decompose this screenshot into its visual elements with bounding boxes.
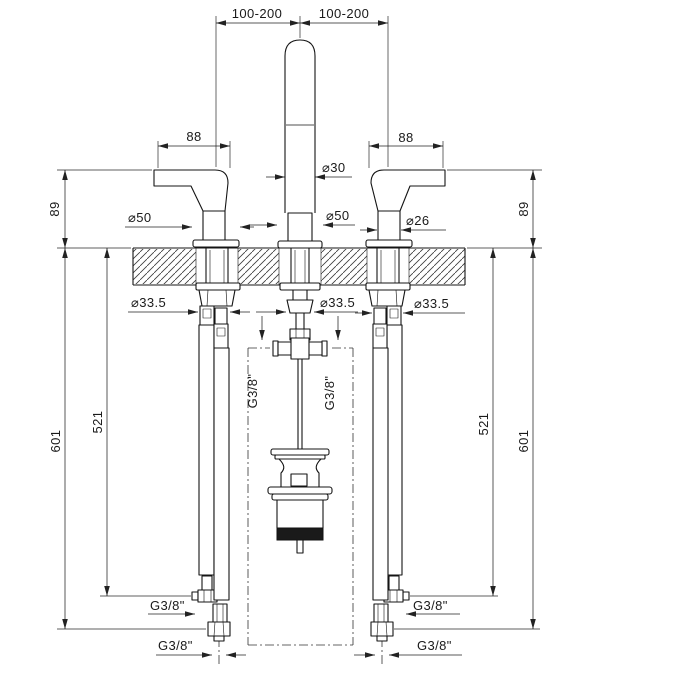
deck-hatch — [238, 249, 279, 284]
elbow-stub-left — [192, 592, 198, 600]
hose-ferrule — [202, 576, 212, 590]
popup-seal — [277, 528, 323, 540]
label-hose-long-left: 601 — [48, 430, 63, 453]
hose-ferrule — [213, 604, 227, 622]
popup-cap-lip — [275, 455, 325, 459]
spout-stem — [296, 313, 304, 329]
label-hose-short-left: 521 — [90, 411, 105, 434]
label-deck-hole-left: ⌀33.5 — [131, 295, 166, 310]
handle-right-grip — [378, 211, 400, 240]
tee-port-cap-left — [273, 341, 278, 356]
label-elbow-thread-right: G3/8" — [413, 598, 448, 613]
label-handle-grip-diameter: ⌀26 — [406, 213, 430, 228]
handle-left — [154, 170, 240, 306]
popup-flange-lip — [272, 494, 328, 500]
drawing-canvas: 100-200 100-200 88 88 89 89 ⌀30 ⌀50 ⌀50 … — [0, 0, 700, 700]
hose-ferrule-detail — [376, 328, 384, 336]
hose-ferrule — [374, 604, 388, 622]
label-hose-long-right: 601 — [516, 430, 531, 453]
faucet-technical-drawing: 100-200 100-200 88 88 89 89 ⌀30 ⌀50 ⌀50 … — [0, 0, 700, 700]
hose-braid-outer-right — [387, 325, 402, 575]
spout-adapter — [287, 300, 313, 313]
tee-arm-left — [278, 342, 292, 355]
supply-hoses-right — [371, 306, 409, 641]
tee-connector — [273, 329, 327, 449]
supply-nut-left — [208, 622, 230, 636]
supply-nut-right — [371, 622, 393, 636]
hose-ferrule — [374, 308, 386, 324]
handle-right-locknut — [369, 290, 405, 306]
popup-pin — [297, 540, 303, 553]
handle-left-shank — [206, 248, 228, 284]
hose-ferrule-detail — [203, 309, 211, 318]
supply-hoses-left — [192, 306, 230, 641]
label-spout-diameter: ⌀30 — [322, 160, 346, 175]
deck-hatch — [133, 249, 196, 284]
handle-left-locknut — [199, 290, 235, 306]
lift-rod — [298, 359, 302, 449]
deck-hatch — [321, 249, 367, 284]
tee-port-cap-right — [322, 341, 327, 356]
handle-right-shank — [377, 248, 399, 284]
popup-flange — [268, 487, 332, 494]
label-span-left: 100-200 — [232, 6, 283, 21]
hose-ferrule — [389, 576, 399, 590]
label-height-left: 89 — [47, 201, 62, 216]
hose-braid-inner-left — [214, 348, 229, 600]
popup-window — [291, 474, 307, 486]
spout-flange — [278, 241, 322, 248]
elbow-stub-right — [403, 592, 409, 600]
handle-right-washer — [366, 283, 410, 290]
supply-thread-stub-left — [214, 636, 224, 641]
hose-ferrule-detail — [390, 309, 398, 318]
label-hose-short-right: 521 — [476, 413, 491, 436]
label-handle-length-right: 88 — [398, 130, 413, 145]
hose-braid-inner-right — [373, 348, 388, 600]
label-supply-thread-right: G3/8" — [417, 638, 452, 653]
label-tee-thread-right: G3/8" — [322, 376, 337, 411]
label-supply-thread-left: G3/8" — [158, 638, 193, 653]
popup-cap — [271, 449, 329, 455]
spout-shank-nut — [293, 290, 307, 300]
label-height-right: 89 — [516, 201, 531, 216]
hose-ferrule-detail — [217, 328, 225, 336]
spout-shank — [291, 248, 309, 284]
deck-hatch — [409, 249, 465, 284]
hose-braid-outer-left — [199, 325, 214, 575]
label-deck-hole-center: ⌀33.5 — [320, 295, 355, 310]
label-handle-flange-diameter: ⌀50 — [128, 210, 152, 225]
handle-right-lever — [371, 170, 445, 211]
handle-left-lever — [154, 170, 228, 211]
label-elbow-thread-left: G3/8" — [150, 598, 185, 613]
deck-section — [133, 248, 465, 285]
spout-underdeck-washer — [280, 283, 320, 290]
supply-thread-stub-right — [377, 636, 387, 641]
spout-grip — [288, 213, 312, 241]
label-spout-flange-diameter: ⌀50 — [326, 208, 350, 223]
spout-tube — [285, 40, 315, 213]
pop-up-waste — [268, 449, 332, 553]
label-deck-hole-right: ⌀33.5 — [414, 296, 449, 311]
tee-arm-right — [308, 342, 322, 355]
popup-body — [277, 500, 323, 528]
handle-left-grip — [203, 211, 225, 240]
handle-right — [366, 170, 445, 306]
hose-ferrule — [215, 308, 227, 324]
label-handle-length-left: 88 — [186, 129, 201, 144]
handle-left-washer — [196, 283, 240, 290]
label-tee-thread-left: G3/8" — [245, 374, 260, 409]
label-span-right: 100-200 — [319, 6, 370, 21]
tee-body — [291, 338, 309, 359]
spout — [278, 40, 322, 329]
handle-left-flange — [193, 240, 239, 247]
handle-right-flange — [366, 240, 412, 247]
